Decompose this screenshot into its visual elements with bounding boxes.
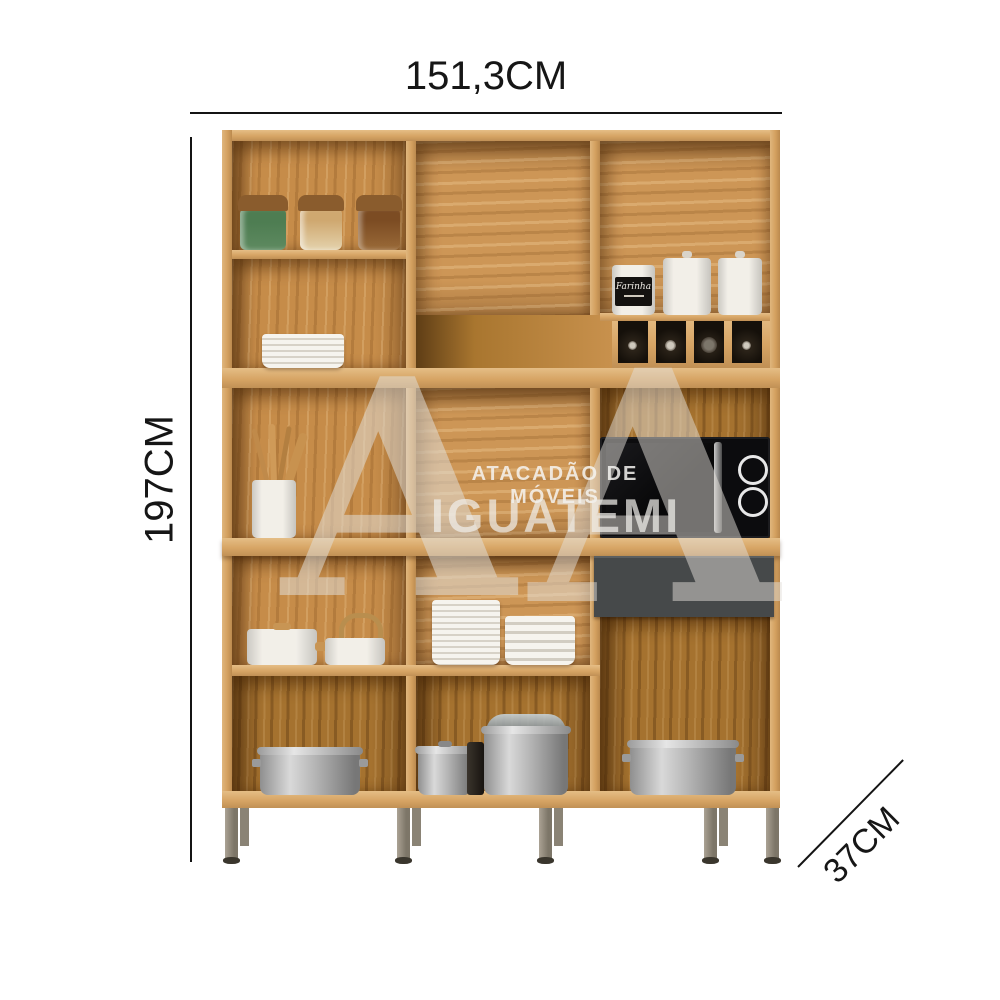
cabinet-leg [766,808,779,858]
jar-lid [298,195,344,211]
cabinet-leg-rear [719,808,728,846]
width-dimension-label: 151,3CM [190,54,782,99]
cabinet-leg-rear [554,808,563,846]
leg-foot [223,857,240,864]
cabinet-side-left [222,130,232,797]
leg-foot [395,857,412,864]
product-dimension-diagram: 151,3CM 197CM 37CM [0,0,1000,1000]
height-dimension-line [190,137,192,862]
shelf [232,250,406,259]
cabinet-leg-rear [412,808,421,846]
height-dimension-label: 197CM [138,360,183,600]
jar-lid [356,195,402,211]
canister-knob [682,251,692,258]
steel-pot [630,744,736,795]
canister-label-text: Farinha [615,282,652,292]
leg-foot [764,857,781,864]
steel-pot [260,751,360,795]
jar-lid [238,195,288,211]
canister-knob [735,251,745,258]
watermark-line2: IGUATEMI [420,488,692,543]
cabinet-leg [225,808,238,858]
cabinet-top [222,130,780,141]
cabinet-leg [397,808,410,858]
cabinet-leg [704,808,717,858]
steel-pot-glass-lid [484,730,568,795]
cabinet-leg-rear [240,808,249,846]
width-dimension-line [190,112,782,114]
divider [590,141,600,315]
cabinet-leg [539,808,552,858]
canister-label-rule [624,295,644,297]
compartment-back [416,141,590,315]
spice-jar [358,208,400,250]
spice-jar [240,208,286,250]
dark-canister [467,742,484,795]
leg-foot [702,857,719,864]
steel-pot-lidded [418,750,472,795]
spice-jar [300,208,342,250]
leg-foot [537,857,554,864]
